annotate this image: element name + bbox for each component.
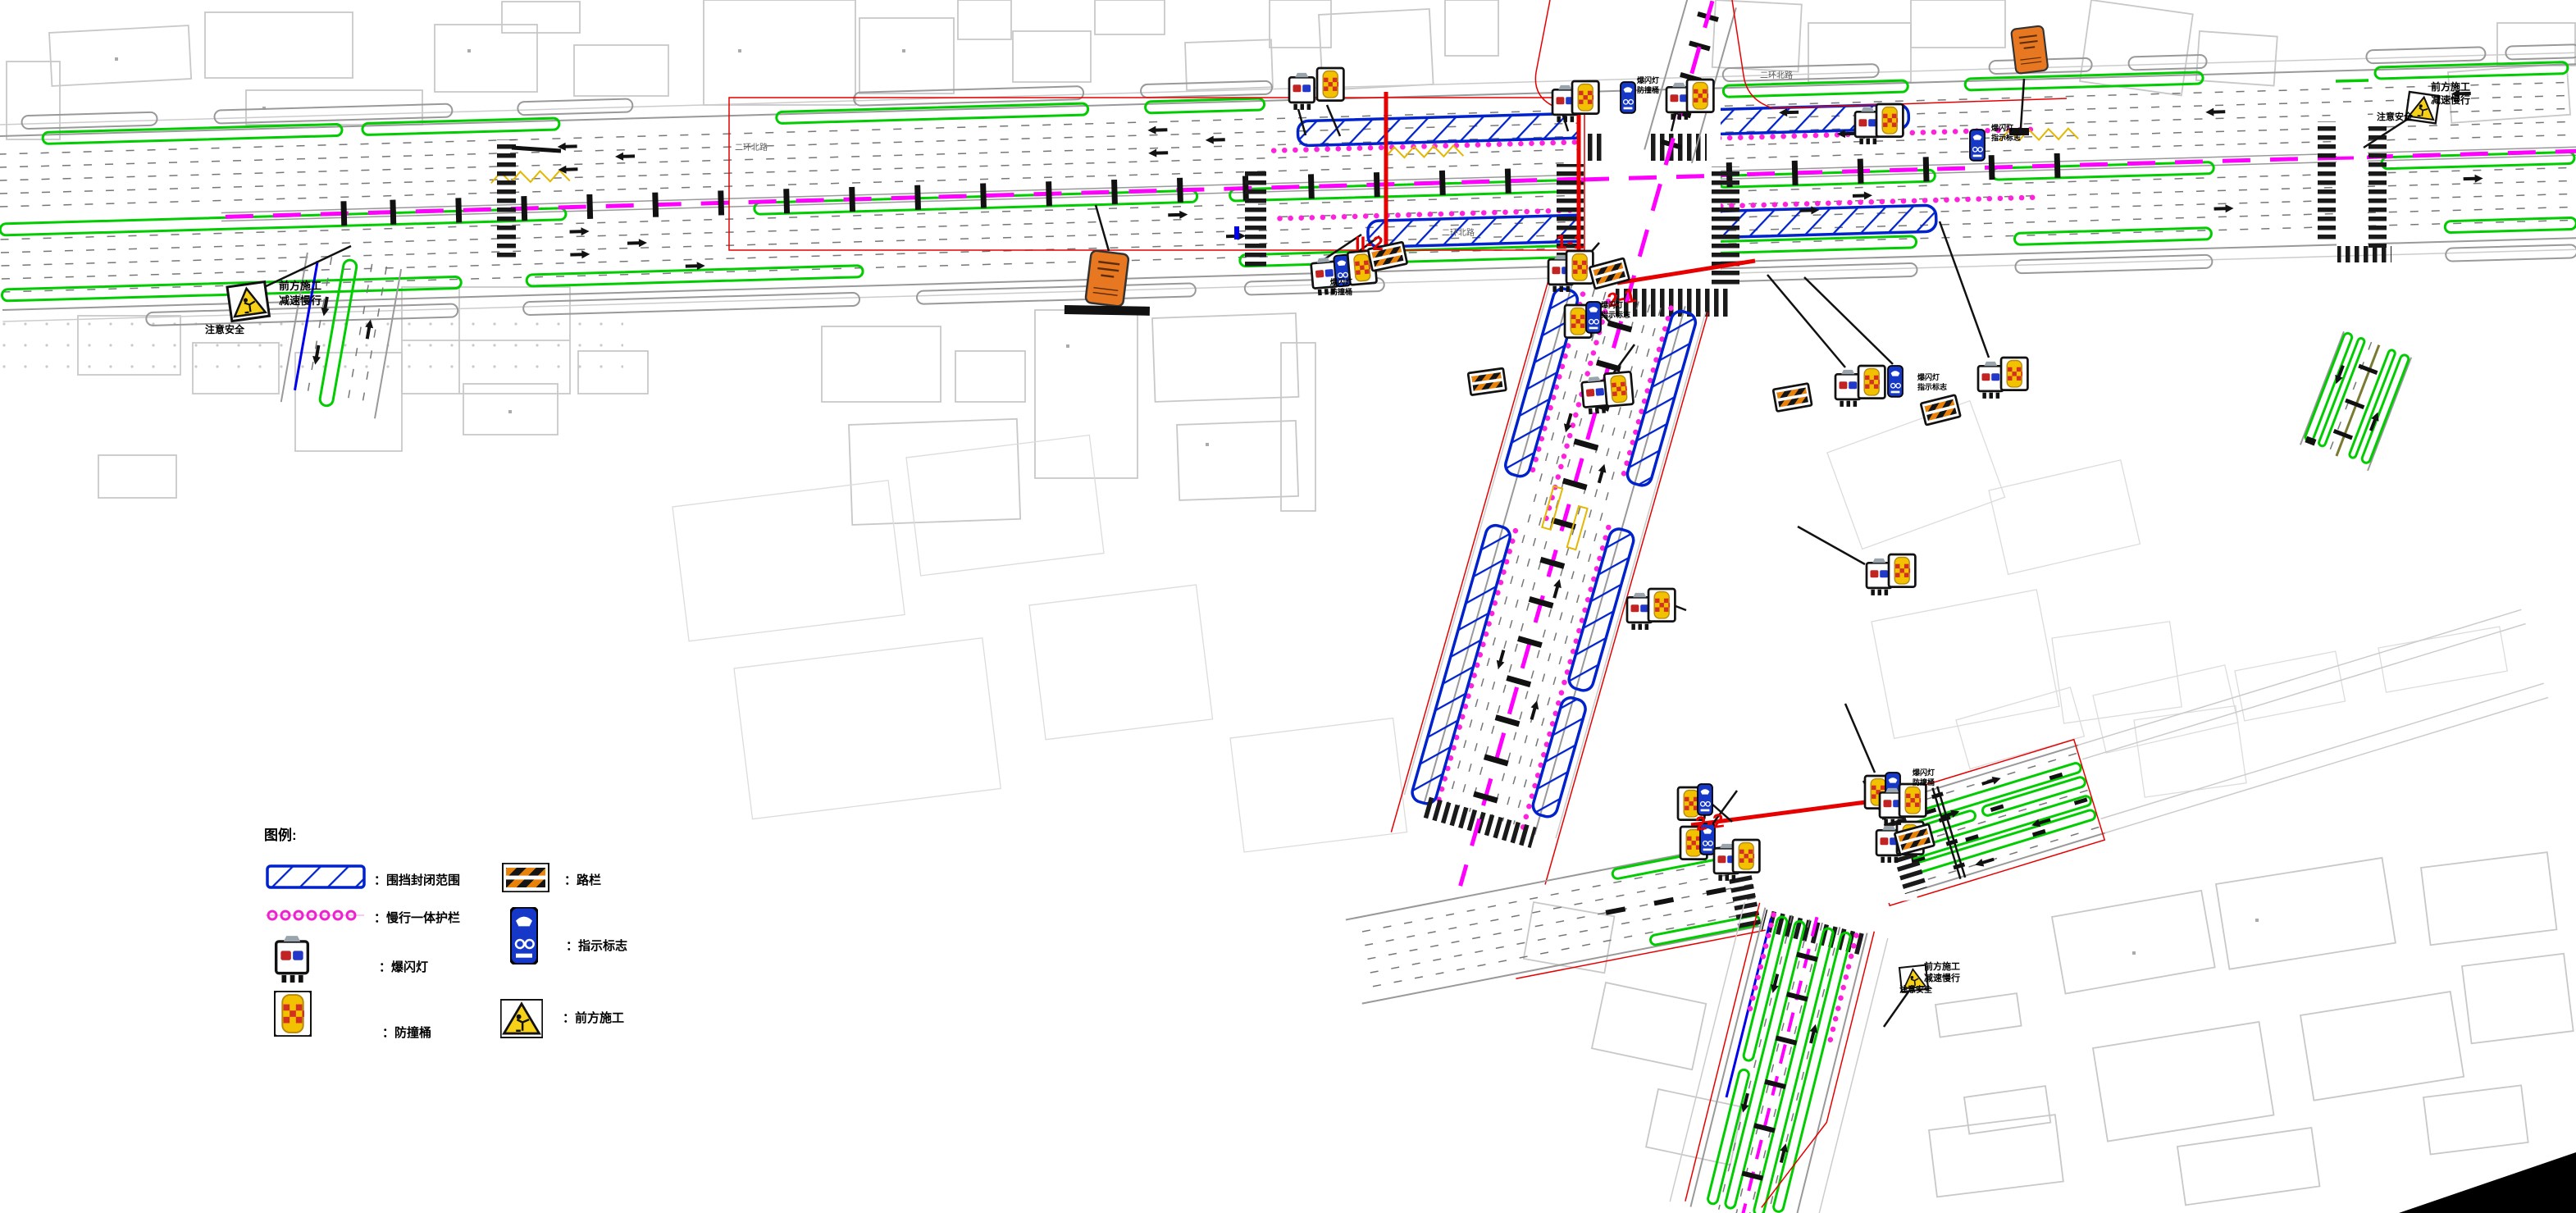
construction-notice-board — [2011, 25, 2048, 74]
wall-line — [512, 148, 561, 151]
callout-label: 注意安全 — [2377, 113, 2413, 122]
callout-label: 前方施工 — [2431, 82, 2470, 92]
legend-item-label: ：爆闪灯 — [379, 958, 428, 975]
crash-barrel-icon — [1687, 80, 1713, 112]
right-crossing-area — [2337, 103, 2368, 249]
callout-label: 防撞桶 — [1913, 779, 1935, 787]
crash-barrel-icon — [1572, 81, 1598, 114]
callout-label: 指示标志 — [1601, 312, 1630, 319]
construction-warning-sign — [227, 282, 269, 321]
legend-warning-icon — [500, 999, 543, 1042]
crash-barrel-icon — [1604, 372, 1634, 406]
west-approach-road — [1346, 841, 1766, 1008]
legend-barrier-icon — [502, 863, 549, 896]
legend-guardrail-swatch — [266, 909, 369, 926]
crash-barrel-icon — [1648, 589, 1675, 622]
legend: 图例: ：围挡封闭范围 ：慢行一体护栏 ：爆闪灯 ：防撞桶 ：路栏 ：指示标志 … — [264, 817, 674, 1063]
strobe-light-icon — [1978, 362, 2004, 399]
road-barrier-icon — [1773, 383, 1812, 411]
road-name-label: 二环北路 — [735, 144, 768, 153]
legend-item-label: ：路栏 — [564, 871, 601, 888]
south-road — [1670, 899, 1889, 1213]
indication-sign-icon — [1888, 366, 1903, 397]
crash-barrel-icon — [1876, 104, 1903, 137]
legend-item-label: ：慢行一体护栏 — [374, 909, 460, 926]
road-name-label: 二环北路 — [1760, 72, 1793, 80]
crash-barrel-icon — [1899, 784, 1926, 817]
callout-label: 前方施工 — [279, 280, 321, 291]
crash-barrel-icon — [1317, 68, 1343, 101]
callout-label: 爆闪灯 — [1917, 374, 1940, 381]
indication-sign-icon — [1698, 784, 1712, 815]
callout-label: 减速慢行 — [279, 295, 321, 306]
legend-header: 图例: — [264, 823, 297, 844]
callout-label: 爆闪灯 — [1330, 279, 1352, 286]
callout-label: 减速慢行 — [2431, 95, 2470, 105]
legend-item-label: ：指示标志 — [566, 937, 627, 954]
callout-label: 指示标志 — [1991, 135, 2021, 142]
strobe-light-icon — [1835, 370, 1861, 407]
section-label: 2-2 — [1694, 811, 1726, 835]
callout-label: 爆闪灯 — [1913, 769, 1935, 777]
indication-sign-icon — [1586, 302, 1601, 333]
callout-label: 注意安全 — [205, 325, 244, 335]
callout-label: 前方施工 — [1924, 963, 1960, 972]
indication-sign-icon — [1621, 82, 1635, 113]
road-barrier-icon — [1921, 395, 1960, 426]
strobe-light-icon — [1289, 73, 1315, 110]
legend-barrel-icon — [274, 991, 312, 1041]
crash-barrel-icon — [1733, 840, 1759, 873]
main-road — [0, 44, 2576, 330]
indication-sign-icon — [1970, 130, 1985, 161]
callout-label: 爆闪灯 — [1637, 77, 1659, 84]
callout-label: 防撞桶 — [1637, 87, 1659, 94]
callout-label: 减速慢行 — [1924, 974, 1960, 983]
drawing-canvas: 图例: ：围挡封闭范围 ：慢行一体护栏 ：爆闪灯 ：防撞桶 ：路栏 ：指示标志 … — [0, 0, 2576, 1213]
crash-barrel-icon — [1889, 554, 1915, 587]
callout-label: 爆闪灯 — [1601, 302, 1623, 309]
construction-notice-board — [1085, 250, 1128, 307]
legend-sign-icon — [510, 907, 538, 969]
section-label: II-2 — [1355, 235, 1384, 254]
callout-label: 防撞桶 — [1330, 289, 1352, 296]
legend-strobe-icon — [272, 935, 312, 987]
crash-barrel-icon — [1858, 366, 1885, 399]
callout-label: 指示标志 — [1917, 384, 1947, 391]
section-label: 1-1 — [1556, 233, 1584, 253]
callout-label: 爆闪灯 — [1991, 125, 2013, 132]
legend-item-label: ：前方施工 — [563, 1009, 624, 1026]
east-approach-road — [1859, 604, 2551, 906]
callout-label: 注意安全 — [1899, 987, 1932, 995]
crash-barrel-icon — [2001, 358, 2027, 390]
road-barrier-icon — [1468, 368, 1507, 395]
page-corner-fold — [2399, 1152, 2576, 1213]
legend-item-label: ：围挡封闭范围 — [374, 871, 460, 888]
legend-enclosure-swatch — [266, 864, 366, 893]
right-side-road — [2300, 331, 2411, 471]
legend-item-label: ：防撞桶 — [382, 1024, 431, 1041]
road-name-label: 二环北路 — [1442, 230, 1475, 238]
